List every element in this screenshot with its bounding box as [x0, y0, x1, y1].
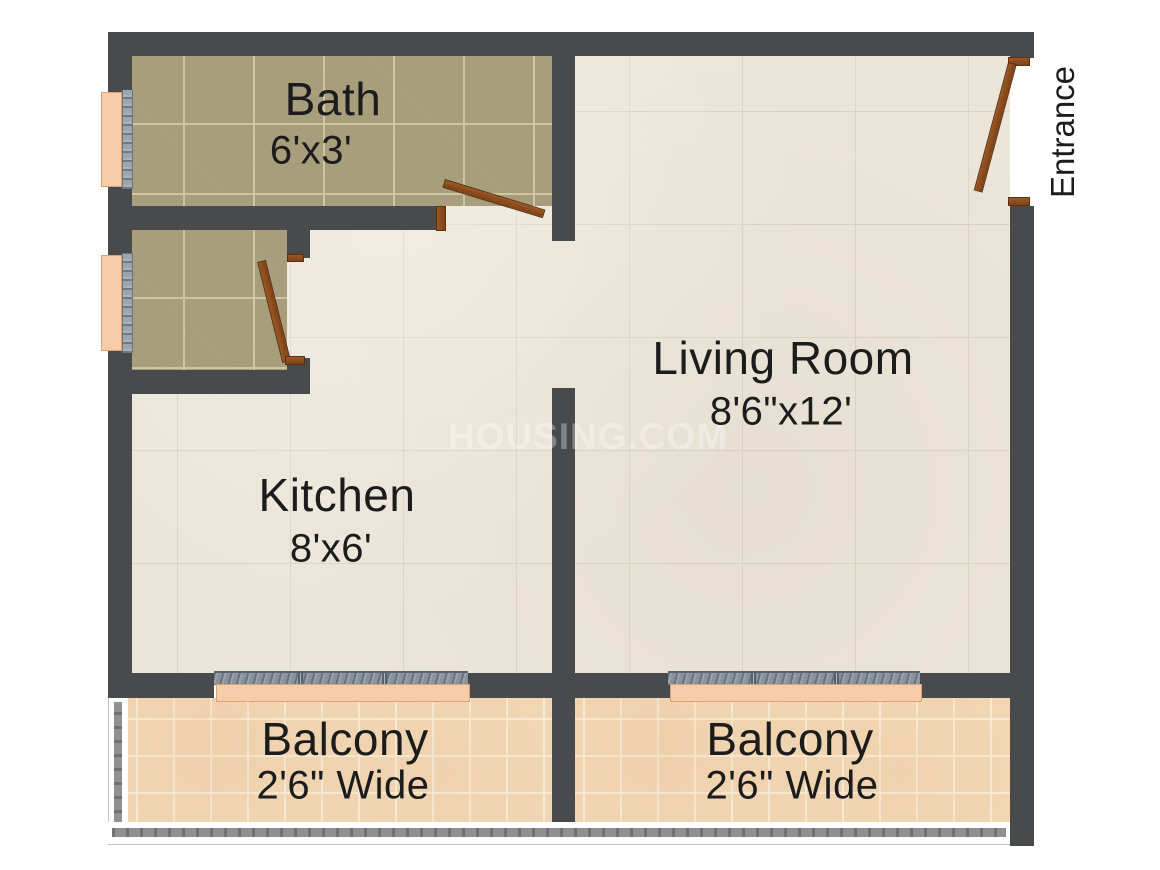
- wall-wc-bottom: [108, 370, 310, 394]
- kitchen-balcony-window: [214, 671, 468, 685]
- window-divider: [298, 673, 303, 684]
- bath-door-jamb: [436, 206, 446, 231]
- railing-bar: [112, 828, 1006, 837]
- living-balcony-window: [668, 671, 920, 685]
- bath-label: Bath: [285, 72, 382, 126]
- wall-bottom-4: [920, 673, 1034, 698]
- living-balcony-sill: [670, 684, 922, 702]
- entrance-label: Entrance: [1044, 66, 1082, 198]
- wc-window: [122, 253, 133, 353]
- wc-floor: [132, 230, 287, 370]
- wc-window-sill: [101, 255, 122, 351]
- living-room-dims: 8'6"x12': [710, 390, 852, 435]
- floor-plan: HOUSING.COM Bath 6'x3' Kitchen 8'x6' Liv…: [0, 0, 1160, 870]
- housing-watermark: HOUSING.COM: [448, 416, 728, 458]
- balcony-left-label: Balcony: [261, 712, 428, 766]
- window-divider: [382, 673, 387, 684]
- wall-bottom-2: [468, 673, 575, 698]
- bath-window-sill: [101, 92, 122, 187]
- entrance-door-jamb-bottom: [1008, 197, 1030, 206]
- bath-dims: 6'x3': [270, 129, 352, 174]
- railing-bar: [114, 702, 122, 841]
- wc-door-jamb-bottom: [285, 356, 305, 365]
- balcony-bottom-railing: [108, 822, 1010, 845]
- bath-window: [122, 90, 133, 189]
- window-divider: [751, 673, 756, 684]
- kitchen-dims: 8'x6': [290, 527, 372, 572]
- living-room-label: Living Room: [652, 331, 913, 385]
- wall-bottom-1: [108, 673, 214, 698]
- wall-right-main: [1010, 206, 1034, 846]
- wall-right-above-entrance: [1010, 32, 1034, 58]
- balcony-right-label: Balcony: [706, 712, 873, 766]
- wall-wc-right-top: [287, 206, 310, 258]
- wall-balcony-divider: [552, 698, 575, 822]
- balcony-right-dims: 2'6" Wide: [705, 764, 878, 809]
- window-divider: [834, 673, 839, 684]
- wall-divider-upper: [552, 32, 575, 241]
- wc-door-jamb-top: [287, 254, 304, 262]
- wall-bath-bottom: [108, 206, 445, 230]
- wall-bottom-3: [575, 673, 670, 698]
- kitchen-balcony-sill: [216, 684, 470, 702]
- balcony-left-dims: 2'6" Wide: [256, 764, 429, 809]
- kitchen-label: Kitchen: [259, 468, 416, 522]
